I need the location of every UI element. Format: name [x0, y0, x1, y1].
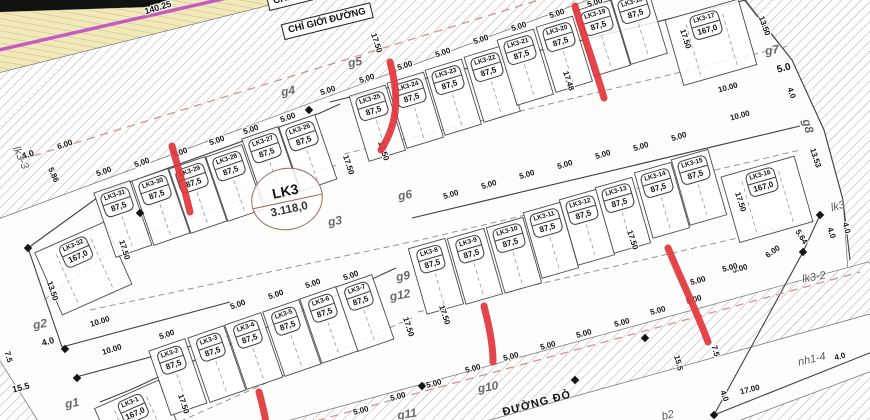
dimension-label: 17.50: [117, 239, 131, 260]
dimension-label: 5.00: [229, 299, 246, 312]
adjacent-block-label: lk3: [830, 200, 846, 214]
dimension-label: 17.50: [369, 32, 383, 54]
plot-label-box: LK3-2687,5: [284, 119, 320, 152]
plot-label-box: LK3-787,5: [343, 280, 376, 312]
plot-label-box: LK3-387,5: [195, 331, 228, 363]
group-label: g7: [764, 43, 780, 57]
group-label: g6: [397, 188, 413, 202]
dimension-label: 5.00: [425, 378, 442, 390]
plot-label-box: LK3-1487,5: [639, 167, 675, 199]
dimension-label: 5.00: [472, 34, 489, 46]
dimension-label: 5.00: [319, 85, 336, 97]
dimension-label: 5.00: [539, 340, 556, 352]
dimension-label: 15.5: [11, 381, 30, 394]
plot-label-box: LK3-2587,5: [354, 90, 390, 122]
dimension-label: 4.0: [834, 352, 847, 362]
dimension-label: 5.00: [548, 8, 565, 20]
dimension-label: 17.50: [341, 154, 355, 176]
dimension-label: 10.00: [717, 82, 738, 95]
cadastral-plan-canvas: LK3 3.118,0 140.255.005.005.005.005.005.…: [0, 0, 870, 420]
dimension-label: 5.00: [689, 275, 706, 287]
dimension-label: 13.53: [808, 147, 822, 169]
dimension-label: 5.00: [670, 131, 687, 143]
dimension-label: 17.50: [176, 393, 190, 415]
plot-label-box: LK3-2787,5: [247, 131, 283, 164]
plot-label-box: LK3-1187,5: [528, 207, 563, 239]
dimension-label: 15.5: [672, 354, 684, 371]
dimension-label: 10.00: [101, 343, 122, 357]
plot-label-box: LK3-1587,5: [676, 154, 712, 186]
dimension-label: 5.00: [510, 21, 527, 33]
plot-label-box: LK3-1287,5: [564, 194, 600, 226]
plot-label-box: LK3-1167,0: [116, 392, 150, 420]
dimension-label: 5.86: [46, 166, 60, 183]
dimension-label: 5.00: [594, 149, 611, 161]
plot-label-box: LK3-3187,5: [99, 185, 135, 218]
red-road-label: ĐƯỜNG ĐỎ: [502, 390, 573, 419]
plot-label-box: LK3-16167,0: [744, 166, 780, 198]
dimension-label: 17.50: [625, 229, 639, 251]
dimension-label: 5.00: [267, 289, 284, 302]
group-label: g2: [32, 317, 48, 331]
plot-label-box: LK3-687,5: [307, 292, 340, 324]
group-label: g1: [64, 396, 80, 410]
road-boundary-label: CHỈ GIỚI ĐƯỜNG: [281, 2, 374, 39]
dimension-label: 17.50: [401, 316, 415, 338]
dimension-label: 4.0: [841, 222, 852, 235]
dimension-label: 4.0: [718, 389, 729, 402]
dimension-label: 140.25: [144, 0, 173, 16]
group-label: g9: [395, 269, 411, 283]
dimension-label: 5.00: [358, 73, 375, 85]
group-label: g5: [347, 55, 363, 69]
plot-label-box: LK3-487,5: [232, 318, 265, 350]
plot-label-box: LK3-1087,5: [491, 222, 527, 254]
plot-label-box: LK3-2987,5: [174, 161, 210, 194]
dimension-label: 5.00: [342, 270, 359, 283]
group-label: g4: [280, 84, 296, 98]
plot-label-box: LK3-17167,0: [688, 9, 724, 41]
dimension-label: 6.00: [56, 139, 73, 152]
plot-label-box: LK3-2487,5: [392, 77, 428, 109]
dimension-label: 4.0: [41, 336, 55, 348]
dimension-label: 5.00: [304, 278, 321, 291]
dimension-label: 4.0: [825, 226, 836, 239]
dimension-label: 13.50: [45, 280, 59, 302]
dimension-label: 17.50: [733, 191, 747, 213]
dimension-label: 5.00: [556, 159, 573, 171]
dimension-label: 5.00: [352, 405, 369, 417]
plot-label-box: LK3-3087,5: [137, 173, 173, 206]
dimension-label: 5.00: [480, 179, 497, 191]
dimension-label: 5.00: [158, 329, 175, 342]
adjacent-block-label: nh1-4: [797, 351, 827, 368]
plot-label-box: LK3-1887,5: [616, 0, 652, 25]
block-summary-bubble: LK3 3.118,0: [245, 161, 328, 237]
dimension-label: 5.00: [649, 305, 666, 317]
plot-label-box: LK3-32167,0: [57, 235, 94, 270]
dimension-label: 5.00: [464, 363, 481, 375]
dimension-label: 5.00: [632, 141, 649, 153]
dimension-label: 17.50: [437, 304, 451, 326]
dimension-label: 6.00: [764, 244, 781, 259]
group-label: g10: [477, 379, 499, 394]
dimension-label: 5.64: [793, 228, 808, 245]
dimension-label: 7.5: [3, 351, 14, 364]
dimension-label: 5.00: [133, 157, 150, 170]
dimension-label: 17.50: [678, 28, 692, 50]
dimension-label: 17.00: [739, 384, 760, 397]
dimension-label: 5.0: [776, 62, 792, 75]
plot-label-box: LK3-887,5: [415, 243, 447, 274]
dimension-label: 5.00: [208, 135, 225, 148]
dimension-label: 5.00: [575, 328, 592, 340]
dimension-label: 5.00: [518, 169, 535, 181]
dimension-label: 5.00: [279, 112, 296, 125]
dimension-label: 10.00: [729, 110, 750, 123]
dimension-label: 5.00: [171, 147, 188, 160]
plot-label-box: LK3-2387,5: [430, 64, 466, 96]
dimension-label: 5.00: [434, 47, 451, 59]
dimension-label: 13.50: [757, 15, 771, 37]
dimension-label: 5.00: [242, 124, 259, 137]
plot-label-box: LK3-1387,5: [600, 182, 636, 214]
dimension-label: 5.00: [389, 391, 406, 403]
dimension-label: 17.50: [376, 140, 390, 162]
adjacent-block-label: b2: [661, 409, 675, 420]
dimension-label: 5.00: [685, 294, 702, 306]
dimension-label: 5.00: [502, 351, 519, 363]
plot-label-box: LK3-2087,5: [541, 21, 577, 53]
group-label: g8: [800, 118, 815, 135]
plot-label-box: LK3-1987,5: [579, 5, 615, 37]
group-label: g11: [396, 406, 418, 420]
plot-label-box: LK3-287,5: [156, 344, 189, 376]
dimension-label: 5.00: [396, 60, 413, 72]
dimension-label: 5.00: [442, 189, 459, 201]
dimension-label: 5.00: [613, 317, 630, 329]
plot-label-box: LK3-2187,5: [502, 34, 538, 66]
plot-label-box: LK3-2287,5: [469, 51, 505, 83]
dimension-label: 5.00: [95, 166, 112, 179]
plot-label-box: LK3-987,5: [454, 233, 486, 264]
dimension-label: 10.00: [89, 315, 110, 329]
group-label: g3: [327, 214, 343, 228]
dimension-label: 4.0: [785, 86, 796, 99]
group-label: g12: [389, 287, 411, 302]
dimension-label: 7.5: [710, 345, 721, 358]
plot-label-box: LK3-2887,5: [211, 149, 247, 182]
plot-label-box: LK3-587,5: [270, 305, 303, 337]
plan-label-layer: LK3 3.118,0 140.255.005.005.005.005.005.…: [0, 0, 870, 420]
adjacent-block-label: lk3-2: [801, 271, 826, 286]
dimension-label: 17.48: [561, 70, 575, 92]
